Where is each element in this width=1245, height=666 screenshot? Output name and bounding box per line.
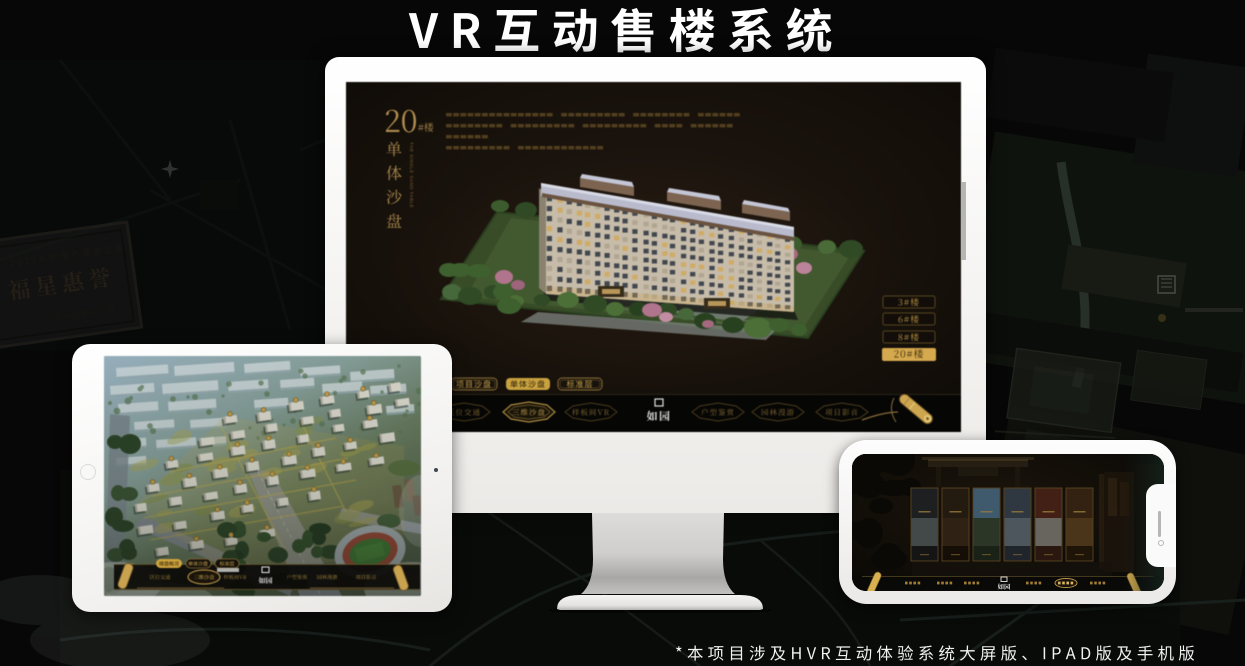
svg-text:THE SINGLE SAND TABLE: THE SINGLE SAND TABLE (409, 142, 414, 208)
